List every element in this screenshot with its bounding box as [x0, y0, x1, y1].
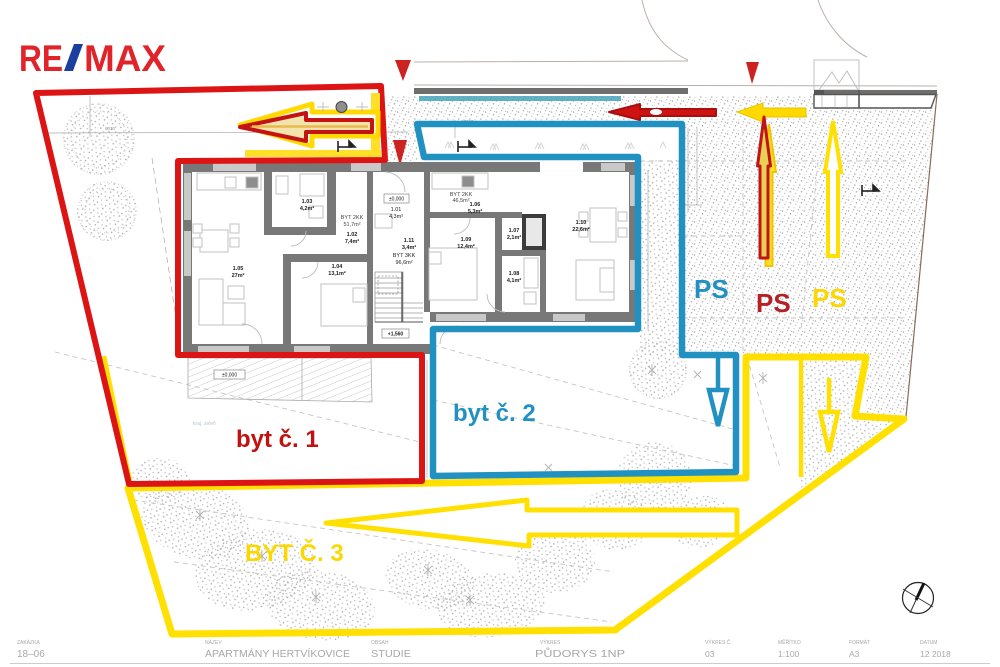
svg-text:1.04: 1.04 — [332, 264, 344, 270]
svg-text:2,1m²: 2,1m² — [507, 234, 522, 241]
svg-text:PS: PS — [694, 274, 729, 304]
svg-text:NÁZEV: NÁZEV — [205, 639, 222, 646]
svg-text:kraj. zeleň: kraj. zeleň — [193, 421, 216, 427]
svg-text:3,4m²: 3,4m² — [402, 244, 417, 251]
svg-text:BYT 2KK: BYT 2KK — [341, 215, 364, 221]
svg-text:1.01: 1.01 — [391, 207, 402, 213]
svg-text:4,2m²: 4,2m² — [300, 205, 315, 212]
svg-text:byt č. 1: byt č. 1 — [236, 426, 319, 453]
svg-text:1.06: 1.06 — [470, 202, 481, 208]
svg-text:OBSAH: OBSAH — [371, 640, 389, 646]
svg-text:ZAKÁZKA: ZAKÁZKA — [17, 639, 40, 646]
svg-text:MAX: MAX — [84, 38, 166, 79]
svg-text:A3: A3 — [849, 649, 860, 659]
svg-text:BYT 3KK: BYT 3KK — [393, 253, 416, 259]
svg-text:1:100: 1:100 — [778, 649, 800, 659]
svg-text:4,3m²: 4,3m² — [389, 214, 403, 220]
svg-text:46,5m²: 46,5m² — [452, 198, 469, 204]
svg-text:±0,000: ±0,000 — [389, 197, 404, 203]
svg-text:1.02: 1.02 — [347, 232, 358, 238]
svg-text:12 2018: 12 2018 — [920, 649, 951, 659]
svg-text:6030: 6030 — [105, 126, 116, 131]
svg-text:PS: PS — [812, 283, 847, 313]
svg-text:DATUM: DATUM — [920, 640, 937, 646]
svg-text:27m²: 27m² — [232, 272, 245, 279]
svg-text:STUDIE: STUDIE — [371, 648, 411, 660]
svg-text:7,4m²: 7,4m² — [345, 238, 360, 245]
svg-text:PS: PS — [756, 288, 791, 318]
svg-text:5,3m²: 5,3m² — [468, 208, 483, 215]
svg-text:BYT Č. 3: BYT Č. 3 — [245, 539, 344, 567]
svg-text:1.03: 1.03 — [302, 199, 313, 205]
svg-text:1.07: 1.07 — [509, 228, 520, 234]
svg-text:51,7m²: 51,7m² — [343, 222, 360, 228]
svg-text:1.05: 1.05 — [233, 266, 244, 272]
svg-text:03: 03 — [705, 649, 715, 659]
svg-text:18–06: 18–06 — [17, 649, 45, 660]
svg-text:1.10: 1.10 — [576, 220, 587, 226]
svg-text:13,1m²: 13,1m² — [328, 270, 346, 277]
svg-text:PŮDORYS 1NP: PŮDORYS 1NP — [535, 647, 625, 660]
svg-text:±0,000: ±0,000 — [222, 373, 237, 379]
svg-text:96,6m²: 96,6m² — [395, 260, 412, 266]
svg-text:1.09: 1.09 — [461, 237, 472, 243]
svg-text:1.08: 1.08 — [509, 271, 520, 277]
svg-text:+1,560: +1,560 — [388, 332, 404, 338]
svg-text:12,4m²: 12,4m² — [457, 243, 475, 250]
svg-text:1.11: 1.11 — [404, 238, 414, 244]
svg-text:RE: RE — [19, 38, 63, 79]
svg-text:4,1m²: 4,1m² — [507, 277, 522, 284]
svg-text:MĚŘÍTKO: MĚŘÍTKO — [778, 638, 801, 646]
svg-text:VÝKRES Č.: VÝKRES Č. — [705, 639, 732, 646]
svg-text:byt č. 2: byt č. 2 — [453, 400, 536, 427]
svg-text:APARTMÁNY HERTVÍKOVICE: APARTMÁNY HERTVÍKOVICE — [205, 647, 350, 660]
svg-text:22,6m²: 22,6m² — [572, 226, 590, 233]
svg-text:VÝKRES: VÝKRES — [540, 639, 561, 646]
svg-text:FORMÁT: FORMÁT — [849, 639, 870, 646]
